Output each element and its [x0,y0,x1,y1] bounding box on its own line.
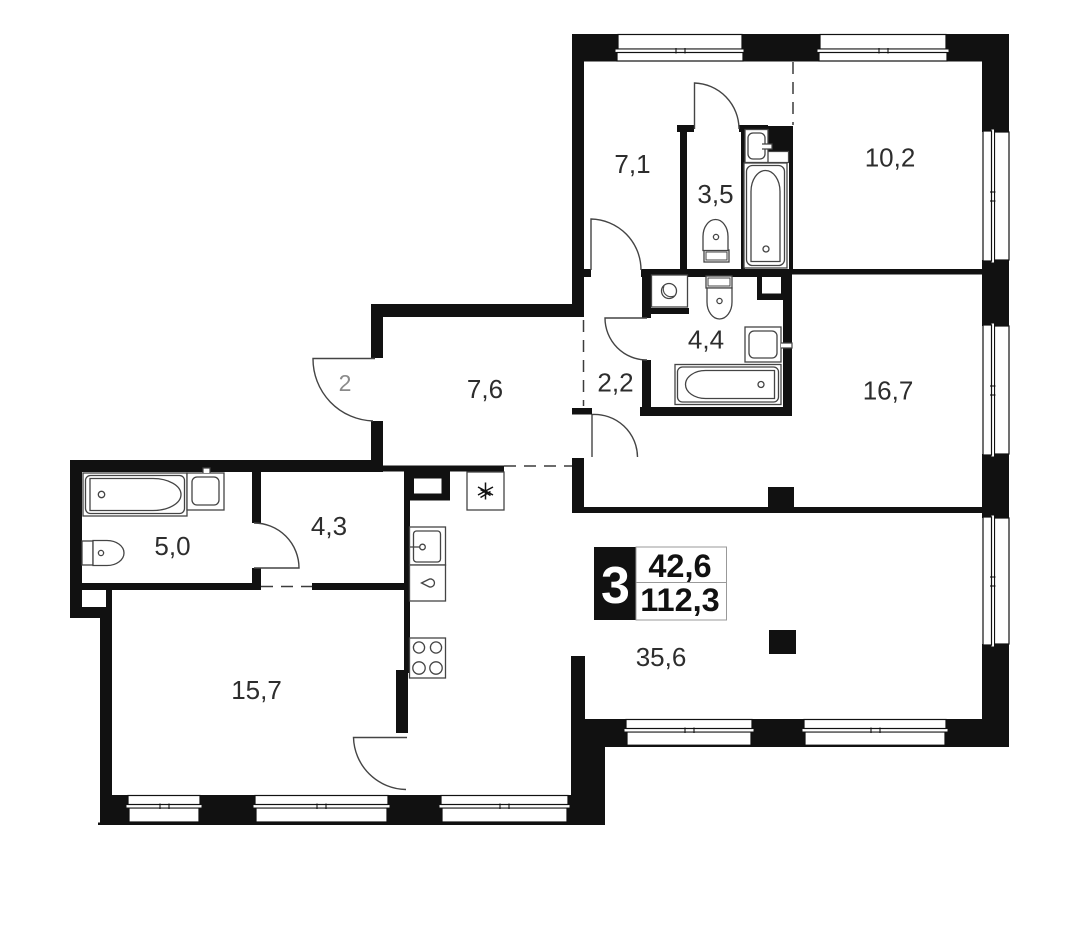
svg-text:2: 2 [339,370,352,396]
svg-text:4,3: 4,3 [311,511,347,541]
svg-text:15,7: 15,7 [231,675,282,705]
svg-text:10,2: 10,2 [865,143,916,173]
svg-text:3,5: 3,5 [697,179,733,209]
svg-text:112,3: 112,3 [640,582,720,618]
svg-text:16,7: 16,7 [863,376,914,406]
svg-text:42,6: 42,6 [648,548,711,584]
svg-text:4,4: 4,4 [688,325,724,355]
svg-text:5,0: 5,0 [154,531,190,561]
svg-text:2,2: 2,2 [597,368,633,398]
svg-text:35,6: 35,6 [636,642,687,672]
svg-text:3: 3 [601,557,630,615]
svg-text:7,1: 7,1 [614,149,650,179]
svg-text:7,6: 7,6 [467,374,503,404]
